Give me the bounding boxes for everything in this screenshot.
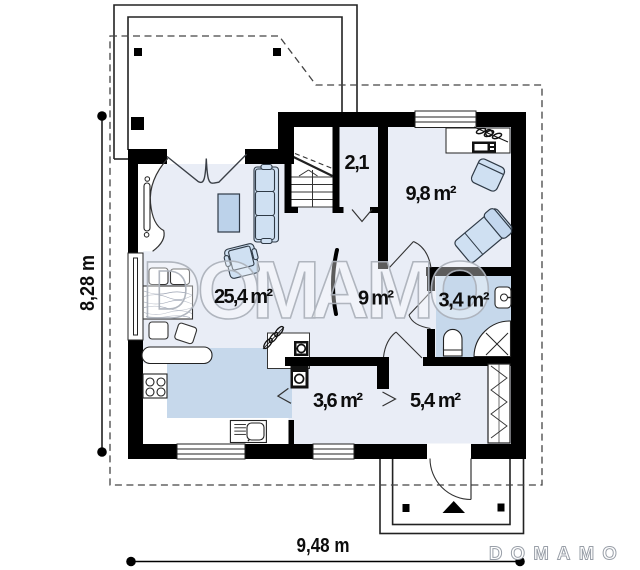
- svg-text:3,4 m²: 3,4 m²: [439, 290, 490, 312]
- svg-text:9,48 m: 9,48 m: [297, 535, 350, 557]
- svg-text:3,6 m²: 3,6 m²: [313, 390, 363, 412]
- svg-text:8,28 m: 8,28 m: [77, 255, 99, 311]
- svg-text:9,8 m²: 9,8 m²: [406, 183, 457, 205]
- svg-text:2,1: 2,1: [345, 152, 370, 174]
- svg-text:D: D: [142, 245, 201, 336]
- svg-text:DOMAMO: DOMAMO: [489, 543, 625, 564]
- svg-text:5,4 m²: 5,4 m²: [410, 390, 461, 412]
- svg-text:25,4 m²: 25,4 m²: [214, 286, 273, 308]
- svg-text:9 m²: 9 m²: [358, 288, 394, 310]
